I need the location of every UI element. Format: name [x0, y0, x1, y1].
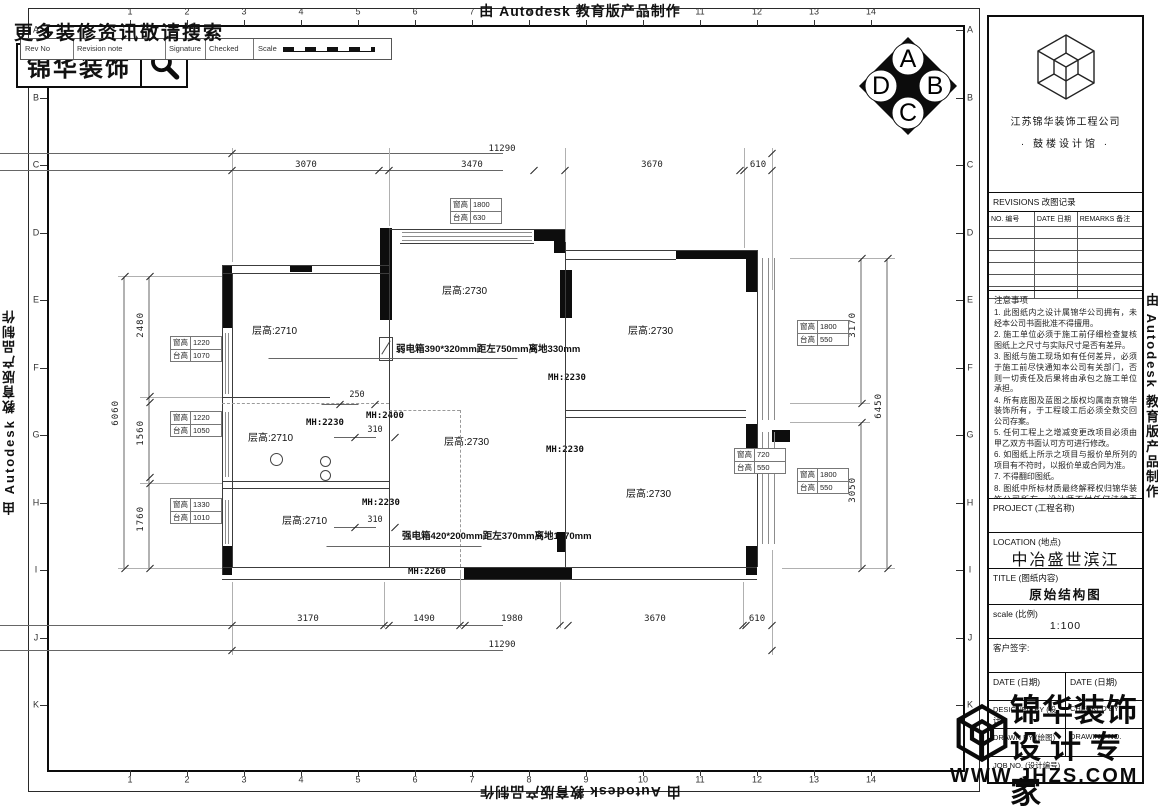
dim-left-seg: 2480 [137, 312, 146, 338]
scale-bar [283, 47, 375, 52]
wall-line [222, 273, 390, 274]
room-height-label: 层高:2730 [628, 327, 673, 337]
grid-tick [301, 20, 302, 26]
dim-small: 310 [367, 516, 382, 525]
wall-segment [380, 228, 392, 320]
wall-line [222, 397, 330, 398]
grid-tick [757, 770, 758, 776]
grid-row-label: J [968, 633, 973, 642]
dimension-line [0, 170, 503, 171]
grid-tick [529, 770, 530, 776]
grid-tick [358, 20, 359, 26]
revision-empty-row [989, 239, 1142, 251]
wall-line [565, 417, 746, 418]
grid-col-label: 10 [638, 8, 648, 17]
door-height-label: MH:2230 [548, 374, 586, 383]
revision-empty-row [989, 251, 1142, 263]
grid-tick [40, 503, 47, 504]
wall-segment [746, 546, 757, 575]
grid-tick [415, 770, 416, 776]
window-tag: 窗高1330 台高1010 [170, 498, 222, 524]
grid-row-label: E [967, 296, 973, 305]
grid-col-label: 6 [412, 776, 417, 785]
window-tag: 窗高1800 台高630 [450, 198, 502, 224]
wall-line [565, 241, 566, 567]
project-section: PROJECT (工程名称) [989, 498, 1142, 532]
company-header: 江苏锦华装饰工程公司 · 鼓楼设计馆 · [989, 17, 1142, 192]
grid-tick [358, 770, 359, 776]
room-height-label: 层高:2710 [248, 434, 293, 444]
extension-line [232, 582, 233, 655]
dim-right-total: 6450 [875, 393, 884, 419]
project-label: PROJECT (工程名称) [993, 502, 1075, 514]
extension-line [744, 148, 745, 248]
extension-line [565, 148, 566, 242]
grid-tick [130, 770, 131, 776]
window-line [228, 412, 229, 477]
dim-top-seg: 610 [749, 161, 767, 170]
grid-tick [244, 20, 245, 26]
grid-tick [40, 705, 47, 706]
note-item: 6. 如图纸上所示之项目与报价单所列的项目有不符时，以报价单或合同为准。 [994, 450, 1137, 471]
grid-col-label: 8 [526, 8, 531, 17]
wall-segment [746, 424, 757, 450]
extension-line [118, 568, 222, 569]
extension-line [790, 403, 870, 404]
grid-col-label: 2 [184, 8, 189, 17]
extension-line [560, 582, 561, 628]
dimension-line [0, 625, 503, 626]
scale-label: scale (比例) [993, 608, 1038, 620]
grid-tick [529, 20, 530, 26]
wall-line [222, 567, 757, 568]
grid-tick [643, 770, 644, 776]
window-tag: 窗高1220 台高1070 [170, 336, 222, 362]
revstrip-checked-label: Checked [209, 45, 239, 53]
wall-line [565, 259, 676, 260]
grid-tick [40, 300, 47, 301]
dimension-line [861, 258, 864, 403]
room-height-label: 层高:2710 [282, 517, 327, 527]
grid-row-label: A [967, 26, 973, 35]
grid-tick [956, 98, 963, 99]
grid-tick [956, 435, 963, 436]
customer-sign-section: 客户签字: [989, 638, 1142, 672]
location-label: LOCATION (地点) [993, 536, 1061, 548]
window-line [228, 500, 229, 544]
grid-col-label: 4 [298, 8, 303, 17]
promo-search-text: 更多装修资讯敬请搜索 [14, 18, 224, 45]
dim-top-seg: 3670 [640, 161, 664, 170]
grid-row-label: B [33, 93, 39, 102]
grid-col-label: 12 [752, 776, 762, 785]
footer-brand-logo: 锦华装饰 设计专家 WWW.JHZS.COM [948, 685, 1158, 803]
dimension-line [124, 276, 127, 568]
grid-tick [40, 233, 47, 234]
revision-empty-row [989, 263, 1142, 275]
dimension-tick [371, 401, 379, 409]
extension-line [389, 148, 390, 226]
revstrip-revno-label: Rev No [25, 45, 50, 53]
grid-tick [40, 98, 47, 99]
revstrip-divider [253, 39, 254, 59]
drawing-title-section: TITLE (图纸内容) 原始结构图 [989, 568, 1142, 604]
grid-tick [956, 300, 963, 301]
extension-line [384, 582, 385, 628]
window-line [228, 333, 229, 394]
weak-current-box-note: 弱电箱390*320mm距左750mm离地330mm [396, 345, 580, 355]
drawing-sheet: 由 Autodesk 教育版产品制作 由 Autodesk 教育版产品制作 由 … [0, 0, 1158, 809]
grid-row-label: D [967, 228, 974, 237]
grid-col-label: 7 [469, 776, 474, 785]
wall-segment [222, 546, 232, 575]
extension-line [232, 148, 233, 262]
grid-tick [814, 770, 815, 776]
dim-right-seg: 3170 [849, 312, 858, 338]
dimension-tick [391, 434, 399, 442]
grid-tick [757, 20, 758, 26]
wall-line [222, 579, 757, 580]
extension-line [460, 570, 461, 628]
note-item: 8. 图纸中所标材质最终解释权归锦华装饰公司所有，设计师不付任何法律责任。 [994, 484, 1137, 498]
footer-cube-logo [952, 703, 1012, 763]
revision-empty-row [989, 275, 1142, 287]
dim-bottom-seg: 3170 [296, 615, 320, 624]
dim-left-seg: 1560 [137, 420, 146, 446]
grid-col-label: 3 [241, 8, 246, 17]
dimension-line [269, 358, 518, 359]
extension-line [118, 276, 222, 277]
dashed-line [460, 410, 461, 567]
dimension-line [0, 153, 503, 154]
grid-tick [40, 165, 47, 166]
dimension-line [0, 650, 503, 651]
grid-tick [301, 770, 302, 776]
room-height-label: 层高:2730 [626, 490, 671, 500]
grid-tick [700, 770, 701, 776]
dim-top-seg: 3070 [294, 161, 318, 170]
grid-tick [187, 770, 188, 776]
dimension-line [861, 422, 864, 568]
revstrip-signature-label: Signature [169, 45, 201, 53]
grid-tick [956, 503, 963, 504]
grid-tick [956, 165, 963, 166]
revision-empty-row [989, 227, 1142, 239]
grid-row-label: I [35, 566, 38, 575]
dim-left-seg: 1760 [137, 506, 146, 532]
revisions-table: REVISIONS 改图记录 NO. 编号 DATE 日期 REMARKS 备注 [989, 192, 1142, 290]
grid-col-label: 13 [809, 8, 819, 17]
grid-row-label: G [32, 431, 39, 440]
wall-line [400, 243, 534, 244]
grid-row-label: C [33, 161, 40, 170]
revstrip-revnote-label: Revision note [77, 45, 122, 53]
dim-bottom-seg: 1490 [412, 615, 436, 624]
dim-left-total: 6060 [112, 400, 121, 426]
wall-segment [222, 266, 232, 328]
room-height-label: 层高:2730 [444, 438, 489, 448]
extension-line [790, 258, 895, 259]
dimension-line [887, 258, 890, 568]
grid-tick [472, 20, 473, 26]
grid-row-label: G [966, 431, 973, 440]
wall-line [389, 228, 390, 567]
grid-col-label: 1 [127, 776, 132, 785]
grid-col-label: 2 [184, 776, 189, 785]
window-line [402, 232, 532, 233]
wall-segment [534, 230, 566, 241]
wall-segment [676, 250, 754, 259]
extension-line [790, 422, 870, 423]
dimension-tick [564, 622, 572, 630]
note-item: 7. 不得翻印图纸。 [994, 472, 1137, 483]
company-name: 江苏锦华装饰工程公司 [989, 113, 1142, 128]
grid-tick [956, 233, 963, 234]
revstrip-scale-label: Scale [258, 45, 277, 53]
wall-line [757, 250, 758, 567]
grid-row-label: D [33, 228, 40, 237]
wall-line [222, 488, 389, 489]
grid-tick [40, 570, 47, 571]
grid-col-label: 9 [583, 776, 588, 785]
dim-bottom-seg: 3670 [643, 615, 667, 624]
door-height-label: MH:2260 [408, 568, 446, 577]
customer-sign-label: 客户签字: [993, 642, 1029, 654]
grid-tick [415, 20, 416, 26]
grid-col-label: 12 [752, 8, 762, 17]
company-branch: · 鼓楼设计馆 · [989, 135, 1142, 150]
room-height-label: 层高:2710 [252, 327, 297, 337]
grid-col-label: 10 [638, 776, 648, 785]
window-tag: 窗高1800 台高550 [797, 320, 849, 346]
location-value: 中冶盛世滨江 [989, 546, 1142, 570]
extension-line [772, 550, 773, 655]
grid-tick [40, 435, 47, 436]
company-cube-logo [1030, 31, 1102, 103]
grid-col-label: 3 [241, 776, 246, 785]
extension-line [743, 582, 744, 628]
extension-line [140, 483, 222, 484]
fixture-circle [270, 453, 283, 466]
dim-small: 310 [367, 426, 382, 435]
grid-tick [871, 20, 872, 26]
dashed-line [222, 403, 389, 404]
grid-row-label: E [33, 296, 39, 305]
grid-tick [956, 30, 963, 31]
grid-tick [472, 770, 473, 776]
notes-section: 注意事项 1. 此图纸内之设计属锦华公司拥有，未经本公司书面批准不得擅用。 2.… [989, 290, 1142, 498]
dim-right-seg: 3050 [849, 477, 858, 503]
window-line [774, 258, 775, 420]
grid-tick [40, 638, 47, 639]
grid-row-label: H [33, 498, 40, 507]
wall-line [565, 250, 757, 251]
grid-col-label: 8 [526, 776, 531, 785]
fixture-circle [320, 470, 331, 481]
grid-col-label: 1 [127, 8, 132, 17]
grid-col-label: 5 [355, 8, 360, 17]
dimension-line [327, 546, 482, 547]
note-item: 3. 图纸与施工现场如有任何差异，必须于施工前尽快通知本公司有关部门，否则一切责… [994, 352, 1137, 394]
wall-segment [290, 266, 312, 272]
window-line [762, 258, 763, 420]
scale-value: 1:100 [989, 620, 1142, 632]
room-height-label: 层高:2730 [442, 287, 487, 297]
grid-row-label: F [967, 363, 973, 372]
grid-col-label: 4 [298, 776, 303, 785]
fixture-circle [320, 456, 331, 467]
dim-bottom-seg: 610 [748, 615, 766, 624]
scale-section: scale (比例) 1:100 [989, 604, 1142, 638]
dimension-tick [530, 167, 538, 175]
grid-row-label: B [967, 93, 973, 102]
window-tag: 窗高1220 台高1050 [170, 411, 222, 437]
grid-col-label: 13 [809, 776, 819, 785]
note-item: 5. 任何工程上之增减变更改项目必须由甲乙双方书面认可方可进行修改。 [994, 428, 1137, 449]
grid-tick [700, 20, 701, 26]
grid-row-label: I [969, 566, 972, 575]
grid-tick [814, 20, 815, 26]
grid-col-label: 14 [866, 776, 876, 785]
grid-col-label: 11 [695, 8, 704, 17]
window-line [225, 412, 226, 477]
window-line [225, 333, 226, 394]
grid-tick [40, 368, 47, 369]
grid-tick [956, 638, 963, 639]
window-line [402, 236, 532, 237]
wall-line [222, 265, 390, 266]
drawing-title-value: 原始结构图 [989, 584, 1142, 603]
grid-tick [244, 770, 245, 776]
grid-col-label: 6 [412, 8, 417, 17]
grid-col-label: 7 [469, 8, 474, 17]
window-line [402, 240, 532, 241]
revisions-title: REVISIONS 改图记录 [989, 193, 1142, 212]
note-item: 4. 所有底图及蓝图之版权均属南京锦华装饰所有，于工程竣工后必须全数交回公司存案… [994, 396, 1137, 428]
extension-line [782, 568, 895, 569]
wall-segment [746, 250, 757, 292]
dimension-tick [391, 524, 399, 532]
window-tag: 窗高1800 台高550 [797, 468, 849, 494]
grid-row-label: H [967, 498, 974, 507]
grid-col-label: 9 [583, 8, 588, 17]
window-line [225, 500, 226, 544]
grid-row-label: J [34, 633, 39, 642]
grid-col-label: 5 [355, 776, 360, 785]
window-line [768, 258, 769, 420]
note-item: 2. 施工单位必须于施工前仔细检查复核图纸上之尺寸与实际尺寸是否有差异。 [994, 330, 1137, 351]
grid-row-label: K [33, 701, 39, 710]
grid-col-label: 14 [866, 8, 876, 17]
dim-top-seg: 3470 [460, 161, 484, 170]
footer-brand-url: WWW.JHZS.COM [950, 765, 1138, 788]
grid-tick [586, 20, 587, 26]
door-height-label: MH:2230 [306, 419, 344, 428]
revisions-header: NO. 编号 DATE 日期 REMARKS 备注 [989, 212, 1142, 227]
grid-tick [643, 20, 644, 26]
dim-bottom-total: 11290 [487, 641, 516, 650]
title-block: 江苏锦华装饰工程公司 · 鼓楼设计馆 · REVISIONS 改图记录 NO. … [987, 15, 1144, 784]
wall-line [565, 410, 746, 411]
grid-col-label: 11 [695, 776, 704, 785]
wall-segment [560, 270, 572, 318]
wall-line [222, 265, 223, 575]
door-height-label: MH:2400 [366, 412, 404, 421]
dim-bottom-seg: 1980 [500, 615, 524, 624]
wall-line [222, 481, 389, 482]
wall-line [232, 273, 233, 567]
grid-tick [956, 570, 963, 571]
grid-tick [956, 368, 963, 369]
location-section: LOCATION (地点) 中冶盛世滨江 [989, 532, 1142, 568]
wall-line [389, 229, 566, 230]
dimension-line [149, 276, 152, 568]
drawing-title-label: TITLE (图纸内容) [993, 572, 1058, 584]
note-item: 1. 此图纸内之设计属锦华公司拥有，未经本公司书面批准不得擅用。 [994, 308, 1137, 329]
grid-tick [586, 770, 587, 776]
notes-title: 注意事项 [994, 295, 1137, 306]
grid-tick [871, 770, 872, 776]
grid-row-label: C [967, 161, 974, 170]
dashed-line [389, 410, 460, 411]
dim-small: 250 [349, 391, 364, 400]
window-tag: 窗高720 台高550 [734, 448, 786, 474]
grid-row-label: F [33, 363, 39, 372]
door-height-label: MH:2230 [362, 499, 400, 508]
